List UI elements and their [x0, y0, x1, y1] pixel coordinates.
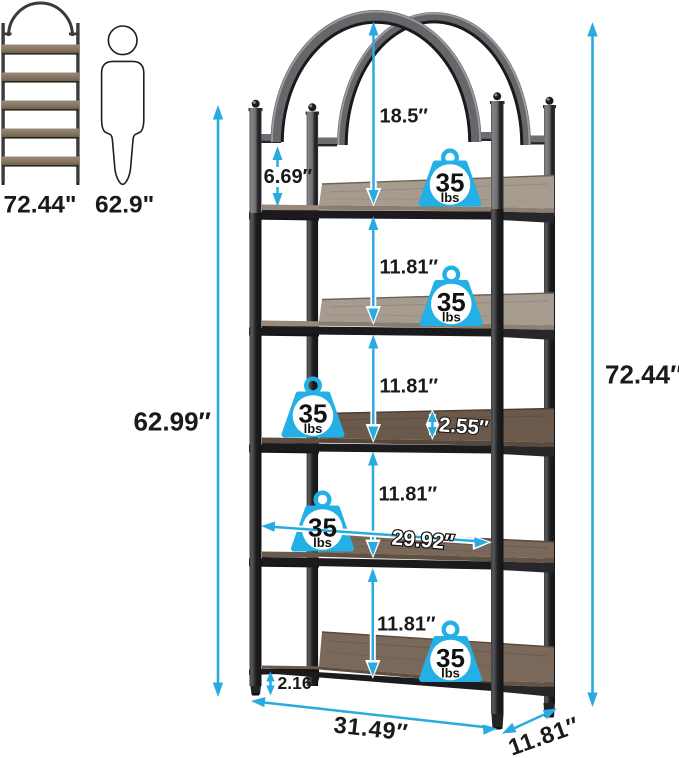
- svg-text:lbs: lbs: [442, 310, 461, 325]
- svg-text:2.16″: 2.16″: [278, 673, 321, 693]
- svg-text:lbs: lbs: [313, 535, 332, 550]
- svg-text:72.44": 72.44": [4, 192, 77, 219]
- svg-text:62.99″: 62.99″: [133, 407, 211, 437]
- svg-text:72.44″: 72.44″: [605, 360, 679, 390]
- svg-text:lbs: lbs: [304, 421, 323, 436]
- svg-text:2.55″: 2.55″: [438, 413, 489, 439]
- svg-text:11.81″: 11.81″: [380, 257, 439, 279]
- svg-text:6.69″: 6.69″: [264, 166, 313, 188]
- svg-text:11.81″: 11.81″: [380, 376, 439, 398]
- svg-text:29.92″: 29.92″: [391, 527, 455, 555]
- svg-text:11.81″: 11.81″: [379, 484, 438, 506]
- svg-text:18.5″: 18.5″: [380, 106, 429, 128]
- svg-text:11.81″: 11.81″: [377, 614, 436, 636]
- svg-text:62.9": 62.9": [95, 192, 154, 219]
- svg-text:lbs: lbs: [441, 190, 460, 205]
- svg-text:lbs: lbs: [441, 666, 460, 681]
